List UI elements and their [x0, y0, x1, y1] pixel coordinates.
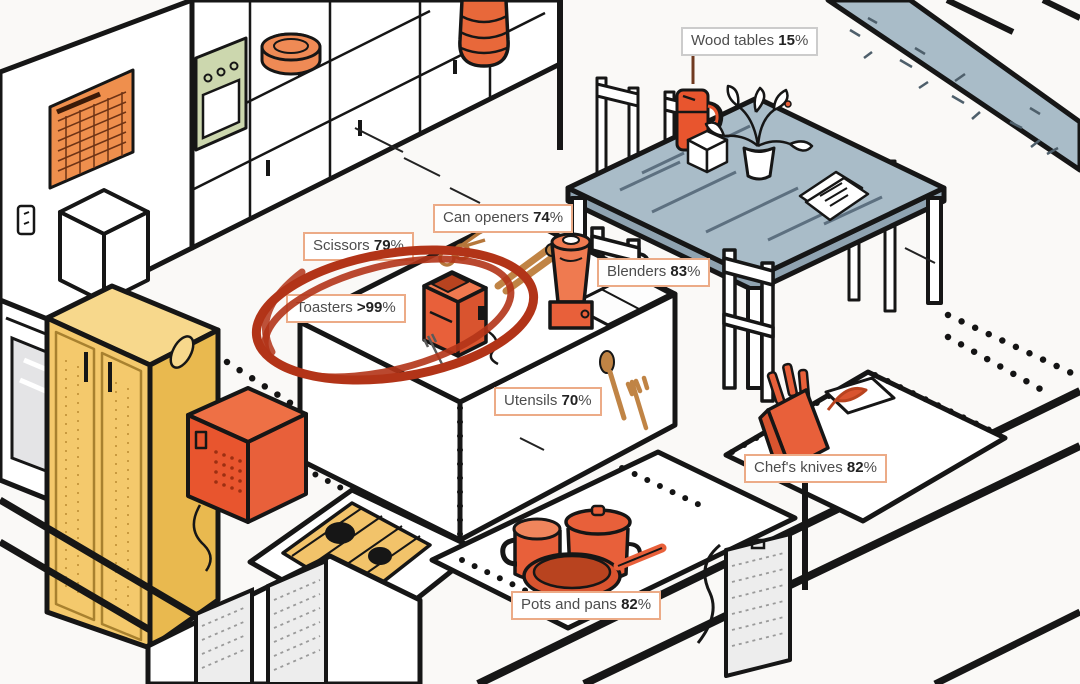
- plate-stack-icon: [262, 34, 320, 74]
- label-toasters: Toasters >99%: [286, 294, 406, 323]
- label-item: Utensils: [504, 392, 557, 409]
- label-pots-and-pans: Pots and pans 82%: [511, 591, 661, 620]
- label-blenders: Blenders 83%: [597, 258, 710, 287]
- label-chefs-knives: Chef's knives 82%: [744, 454, 887, 483]
- dishwasher-panel-right: [726, 534, 790, 676]
- label-item: Scissors: [313, 237, 370, 254]
- label-pct: %: [864, 459, 877, 476]
- pedestal-box: [60, 190, 148, 302]
- label-value: 82: [847, 459, 864, 476]
- label-pct: %: [382, 299, 395, 316]
- label-pct: %: [638, 596, 651, 613]
- label-value: 70: [562, 392, 579, 409]
- label-item: Chef's knives: [754, 459, 843, 476]
- wall-outlet-icon: [18, 206, 34, 234]
- label-item: Toasters: [296, 299, 353, 316]
- label-utensils: Utensils 70%: [494, 387, 602, 416]
- label-value: 74: [533, 209, 550, 226]
- label-value: 79: [374, 237, 391, 254]
- label-value: >99: [357, 299, 382, 316]
- label-can-openers: Can openers 74%: [433, 204, 573, 233]
- label-value: 83: [670, 263, 687, 280]
- label-scissors: Scissors 79%: [303, 232, 414, 261]
- label-value: 15: [778, 32, 795, 49]
- label-item: Wood tables: [691, 32, 774, 49]
- vase-icon: [460, 0, 508, 66]
- label-wood-tables: Wood tables 15%: [681, 27, 818, 56]
- tissue-cube-icon: [688, 131, 727, 172]
- label-pct: %: [550, 209, 563, 226]
- label-pct: %: [687, 263, 700, 280]
- blender-icon: [550, 234, 592, 328]
- label-pct: %: [391, 237, 404, 254]
- label-value: 82: [621, 596, 638, 613]
- label-pct: %: [578, 392, 591, 409]
- label-item: Can openers: [443, 209, 529, 226]
- label-pct: %: [795, 32, 808, 49]
- label-item: Pots and pans: [521, 596, 617, 613]
- label-item: Blenders: [607, 263, 666, 280]
- kitchen-infographic: Wood tables 15% Can openers 74% Scissors…: [0, 0, 1080, 684]
- kitchen-illustration: [0, 0, 1080, 684]
